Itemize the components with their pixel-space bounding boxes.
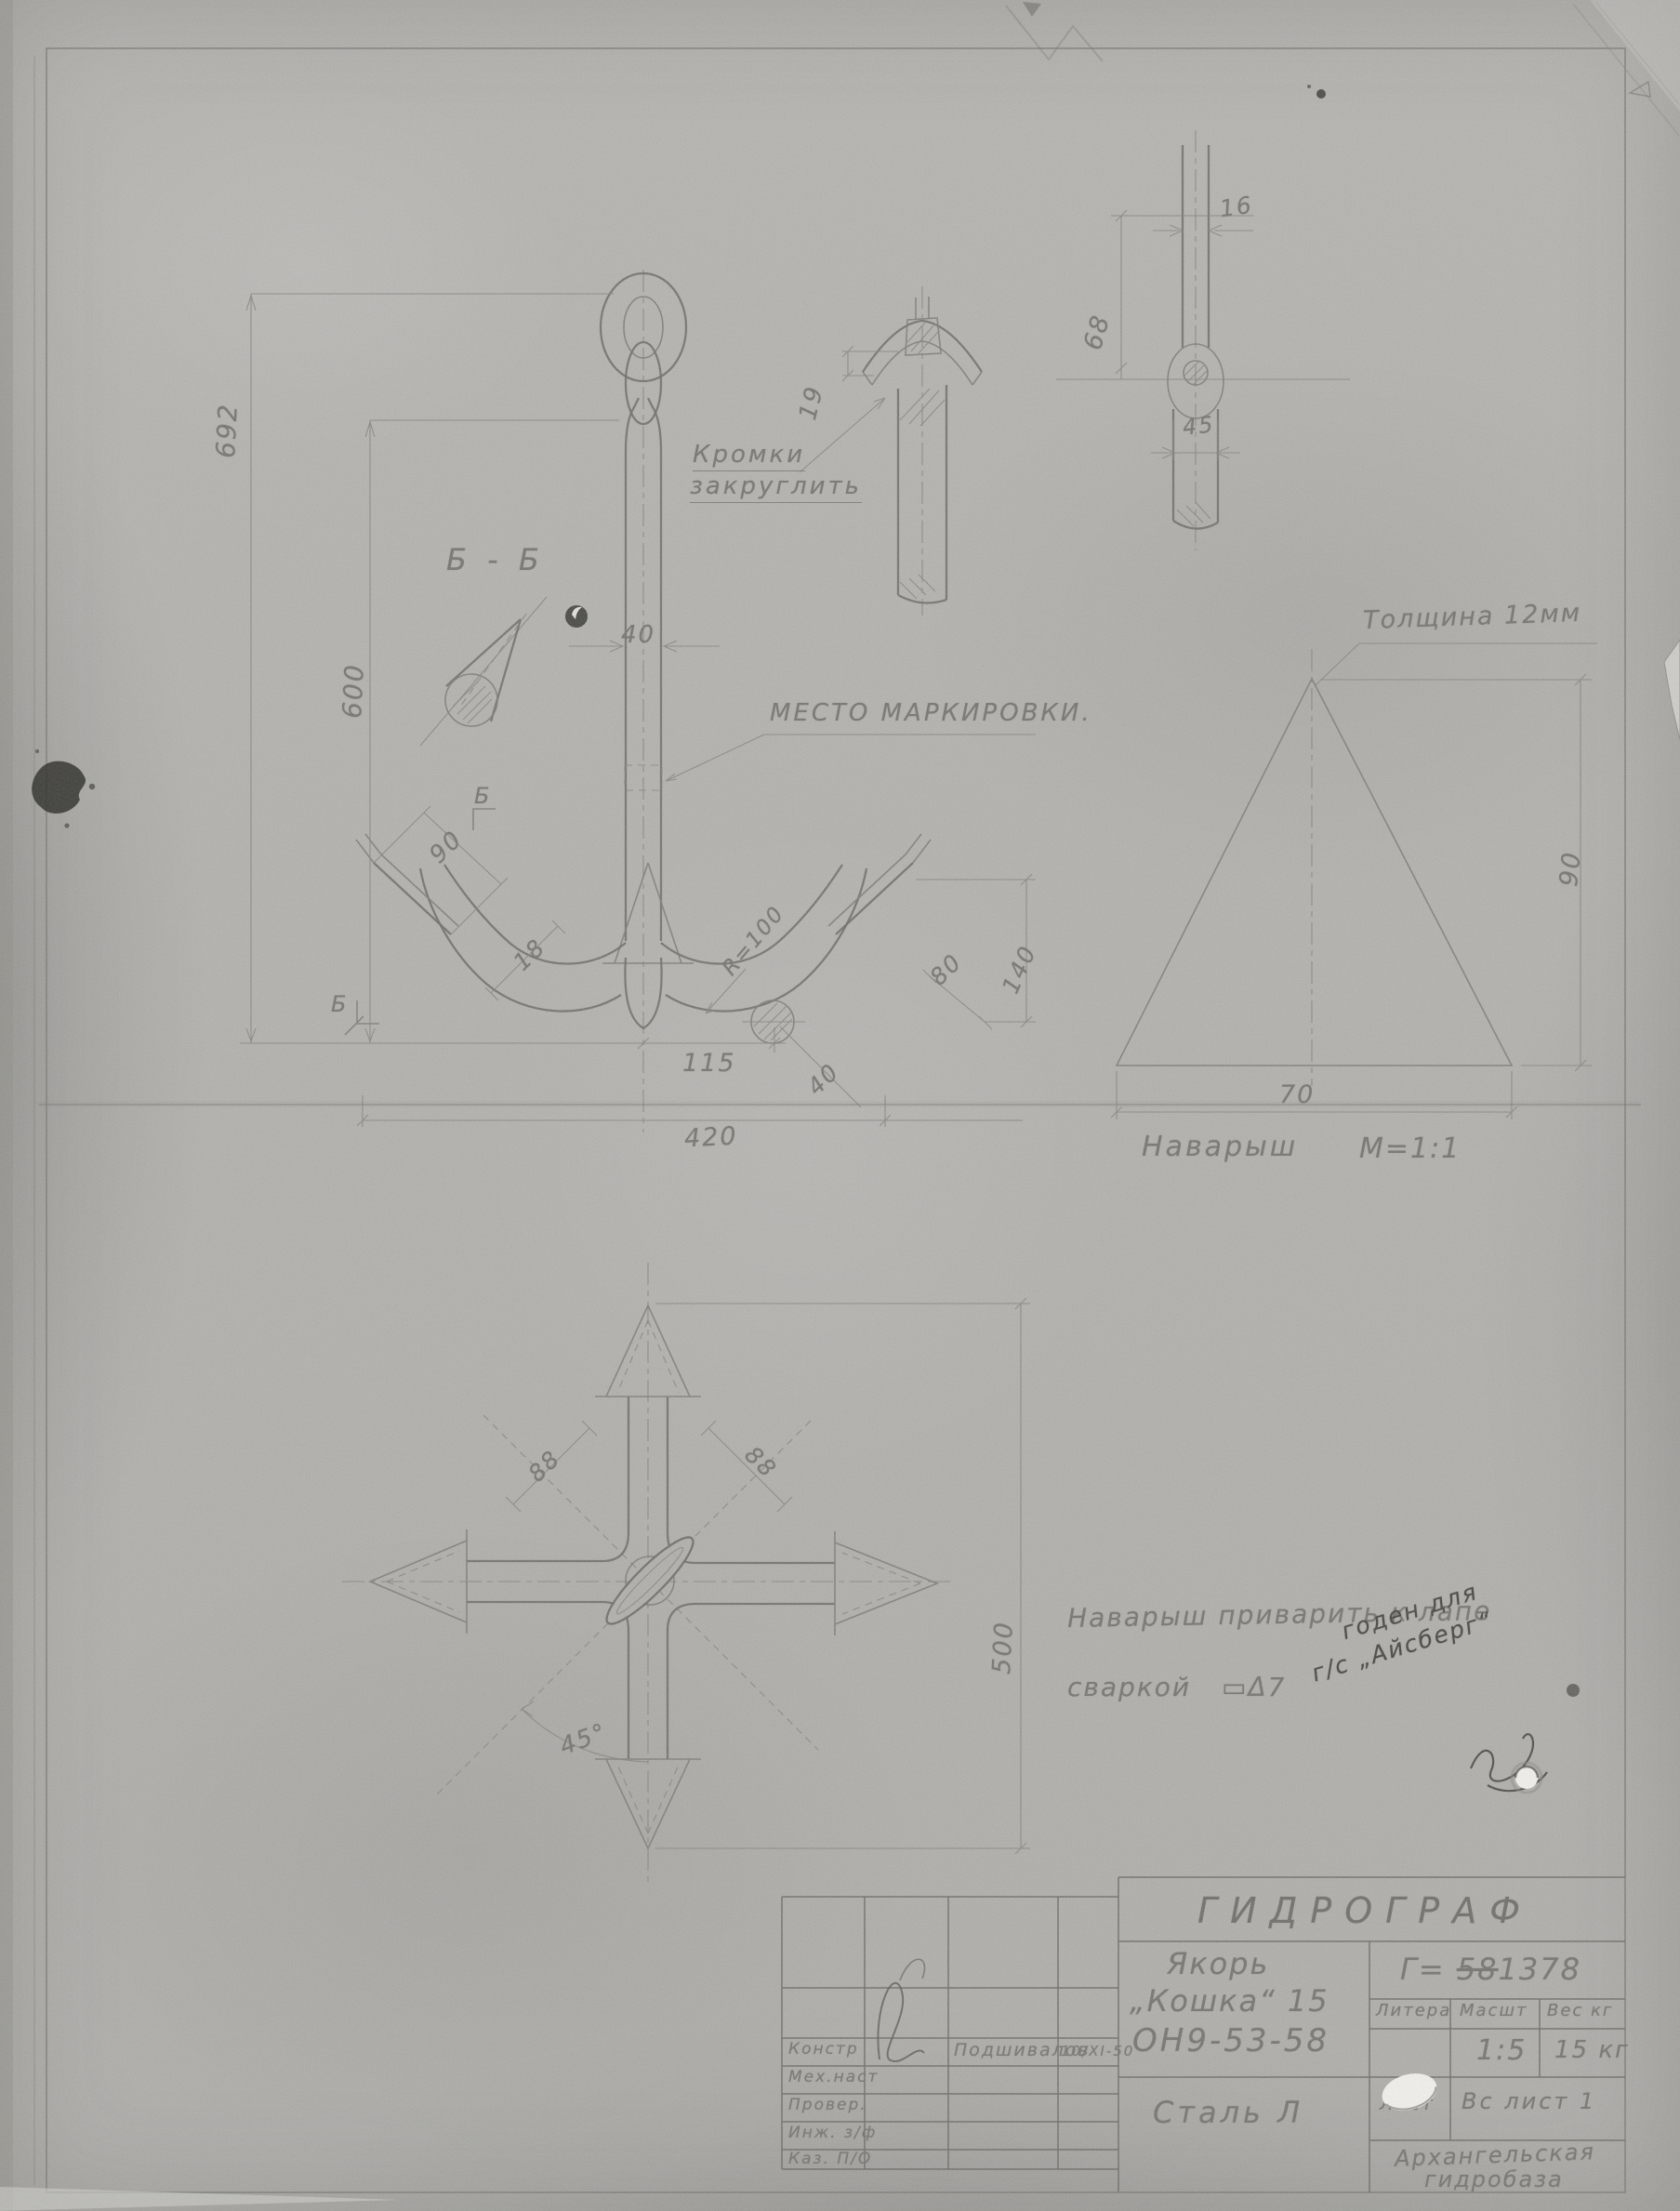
stamp-signature <box>1471 1734 1547 1791</box>
blueprint-sheet: 692 600 40 Б - Б Кромки закруглить МЕСТО… <box>0 0 1680 2211</box>
title-sheets-label: Вс лист 1 <box>1462 2090 1596 2113</box>
scan-grain <box>0 0 1680 2211</box>
sig-row-label-mech: Мех.наст <box>788 2070 879 2086</box>
sig-row-label-kaz: Каз. П/О <box>788 2151 872 2168</box>
dim-radius-r100: R=100 <box>719 902 789 980</box>
dim-fluke-80: 80 <box>926 949 967 990</box>
dim-blade-90: 90 <box>426 827 469 868</box>
dim-40-diagonal: 40 <box>803 1059 844 1100</box>
section-mark-b-bottom: Б <box>331 993 348 1016</box>
dim-arm-18: 18 <box>509 934 550 975</box>
sheet-frame <box>46 48 1625 2192</box>
weld-note-line2: сваркой ▭Δ7 <box>1067 1674 1286 1701</box>
dim-side-16: 16 <box>1218 193 1254 222</box>
dim-shank-height: 600 <box>338 663 368 720</box>
title-weight-value: 15 кг <box>1554 2038 1630 2063</box>
note-pad-thickness: Толщина 12мм <box>1363 601 1582 635</box>
dim-fluke-140: 140 <box>999 942 1041 998</box>
sig-row-label-inzh: Инж. з/ф <box>788 2125 877 2142</box>
pad-scale: М=1:1 <box>1359 1134 1461 1164</box>
title-scale-value: 1:5 <box>1476 2036 1527 2066</box>
title-col-scale: Масшт <box>1460 2003 1528 2020</box>
dim-420: 420 <box>683 1124 738 1153</box>
title-org: ГИДРОГРАФ <box>1197 1893 1533 1930</box>
stamp-note: годен для г/с „Айсберг“ <box>1300 1578 1496 1687</box>
dim-plan-88-left: 88 <box>524 1446 565 1487</box>
drawing-linework <box>0 0 1680 2211</box>
section-bb-cone <box>420 597 547 746</box>
paper-damage-grain <box>0 0 1680 2211</box>
dim-side-68: 68 <box>1080 311 1116 353</box>
sig-row-date: 10/XI-50 <box>1061 2045 1134 2059</box>
pad-caption: Наварыш <box>1142 1132 1298 1162</box>
dim-pad-70: 70 <box>1279 1082 1315 1108</box>
fold-creases <box>34 56 1641 2185</box>
title-item-code: ОН9-53-58 <box>1132 2025 1329 2059</box>
weld-symbol: ▭Δ7 <box>1222 1672 1286 1702</box>
arm-side-view-linework <box>842 286 982 616</box>
note-marking: МЕСТО МАРКИРОВКИ. <box>770 701 1092 726</box>
title-item-line1: Якорь <box>1167 1949 1269 1980</box>
dim-overall-height: 692 <box>212 403 242 459</box>
weld-note-word: сваркой <box>1067 1672 1191 1702</box>
constructor-signature <box>878 1983 924 2061</box>
section-bb-label: Б - Б <box>446 545 545 576</box>
doc-struck: 58 <box>1457 1952 1499 1987</box>
dim-plan-angle-45: 45° <box>557 1720 611 1760</box>
sig-row-label-constr: Констр <box>788 2042 859 2059</box>
plan-view-linework <box>342 1263 1030 1882</box>
section-mark-b-top: Б <box>474 785 491 808</box>
sig-row-label-prover: Провер. <box>788 2098 867 2114</box>
dim-115: 115 <box>682 1051 736 1077</box>
title-col-litera: Литера <box>1376 2003 1451 2020</box>
title-material: Сталь Л <box>1153 2098 1303 2129</box>
title-doc-number: Г= 581378 <box>1400 1954 1581 1986</box>
paper-damage <box>0 0 1680 2211</box>
dim-shank-width: 40 <box>621 623 655 648</box>
title-col-weight: Вес кг <box>1547 2003 1613 2020</box>
dim-side-45: 45 <box>1182 413 1216 440</box>
dim-plan-500: 500 <box>989 1621 1018 1675</box>
dim-pad-90: 90 <box>1556 850 1586 888</box>
dim-crown-19: 19 <box>796 383 828 423</box>
doc-prefix: Г= <box>1400 1952 1446 1987</box>
doc-num: 1378 <box>1499 1952 1581 1987</box>
note-edges-line2: закруглить <box>690 474 862 503</box>
pad-detail-linework <box>1111 643 1597 1119</box>
dim-plan-88-right: 88 <box>740 1442 781 1483</box>
title-item-line2: „Кошка“ 15 <box>1130 1986 1329 2018</box>
note-edges-line1: Кромки <box>693 443 805 471</box>
title-org2-line2: гидробаза <box>1424 2168 1564 2191</box>
title-sheet-label: Лист <box>1380 2094 1435 2113</box>
